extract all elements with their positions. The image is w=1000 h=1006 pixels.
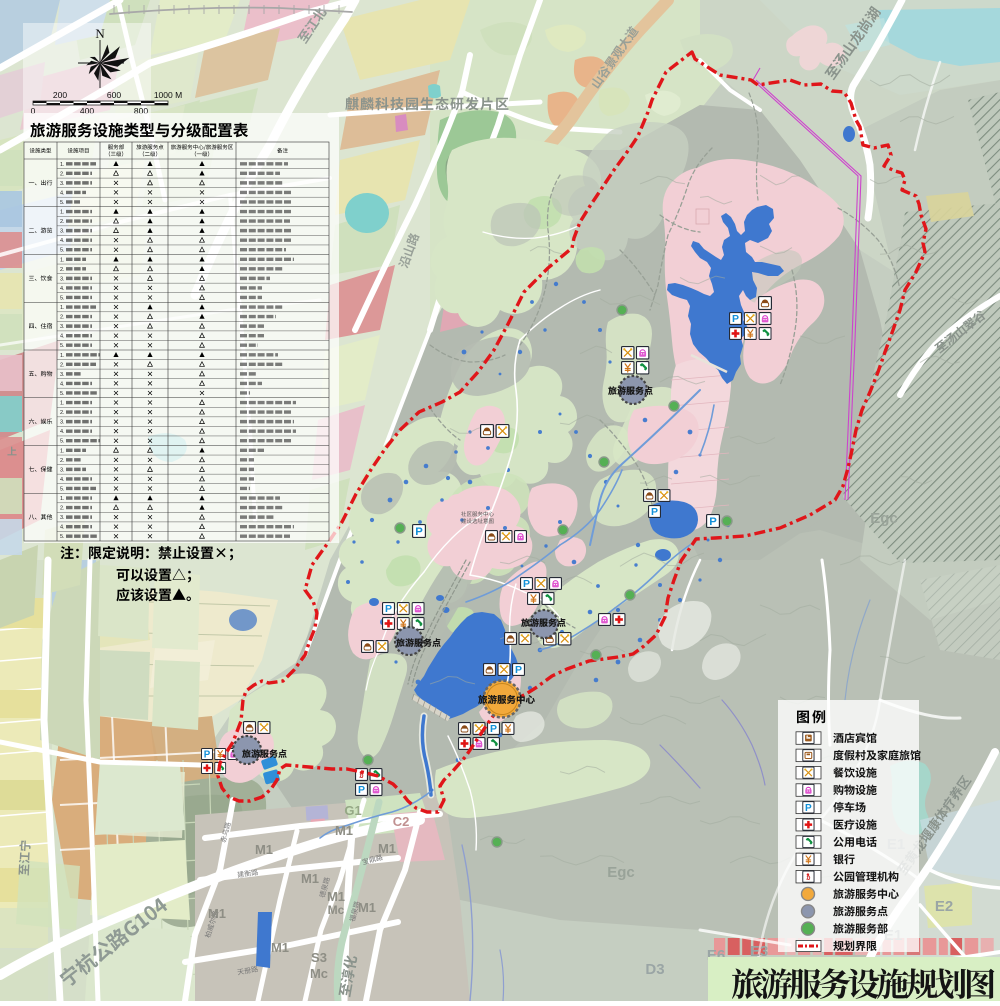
svg-text:M1: M1	[378, 841, 396, 856]
svg-text:1.: 1.	[60, 448, 65, 454]
svg-text:M1: M1	[271, 940, 289, 955]
svg-text:5.: 5.	[60, 391, 65, 397]
svg-text:2.: 2.	[60, 410, 65, 416]
svg-text:M1: M1	[358, 900, 376, 915]
svg-text:M1: M1	[327, 889, 345, 904]
svg-text:G1: G1	[344, 803, 361, 818]
svg-text:S3: S3	[311, 950, 327, 965]
svg-text:5.: 5.	[60, 200, 65, 206]
svg-text:Egc: Egc	[870, 510, 898, 527]
svg-text:2.: 2.	[60, 267, 65, 273]
svg-text:1.: 1.	[60, 257, 65, 263]
svg-text:2.: 2.	[60, 458, 65, 464]
svg-text:3.: 3.	[60, 181, 65, 187]
svg-text:M1: M1	[335, 823, 353, 838]
svg-text:200: 200	[53, 90, 67, 100]
svg-text:4.: 4.	[60, 334, 65, 340]
svg-text:E2: E2	[935, 898, 953, 915]
svg-text:1.: 1.	[60, 353, 65, 359]
svg-text:5.: 5.	[60, 295, 65, 301]
svg-text:5.: 5.	[60, 439, 65, 445]
svg-text:2.: 2.	[60, 171, 65, 177]
svg-text:3.: 3.	[60, 229, 65, 235]
svg-text:M1: M1	[255, 842, 273, 857]
svg-text:1.: 1.	[60, 496, 65, 502]
svg-text:4.: 4.	[60, 238, 65, 244]
svg-text:4.: 4.	[60, 190, 65, 196]
svg-text:3.: 3.	[60, 515, 65, 521]
svg-text:Mc: Mc	[310, 966, 328, 981]
svg-text:Egc: Egc	[607, 864, 635, 881]
svg-text:2.: 2.	[60, 219, 65, 225]
svg-text:5.: 5.	[60, 248, 65, 254]
svg-text:3.: 3.	[60, 276, 65, 282]
svg-text:3.: 3.	[60, 372, 65, 378]
svg-text:4.: 4.	[60, 525, 65, 531]
svg-text:M1: M1	[208, 906, 226, 921]
svg-text:Mc: Mc	[328, 903, 345, 917]
svg-text:4.: 4.	[60, 381, 65, 387]
svg-text:1.: 1.	[60, 305, 65, 311]
svg-text:4.: 4.	[60, 286, 65, 292]
svg-text:3.: 3.	[60, 324, 65, 330]
svg-text:5.: 5.	[60, 486, 65, 492]
svg-text:4.: 4.	[60, 429, 65, 435]
svg-text:1.: 1.	[60, 162, 65, 168]
svg-text:1.: 1.	[60, 401, 65, 407]
svg-text:N: N	[95, 26, 105, 41]
svg-text:1000 M: 1000 M	[154, 90, 182, 100]
svg-text:3.: 3.	[60, 420, 65, 426]
svg-text:C2: C2	[393, 814, 410, 829]
svg-text:5.: 5.	[60, 343, 65, 349]
svg-text:M1: M1	[301, 871, 319, 886]
svg-text:2.: 2.	[60, 362, 65, 368]
svg-text:5.: 5.	[60, 534, 65, 540]
svg-text:2.: 2.	[60, 506, 65, 512]
svg-text:1.: 1.	[60, 210, 65, 216]
svg-text:4.: 4.	[60, 477, 65, 483]
svg-text:2.: 2.	[60, 315, 65, 321]
svg-text:3.: 3.	[60, 467, 65, 473]
svg-text:600: 600	[107, 90, 121, 100]
